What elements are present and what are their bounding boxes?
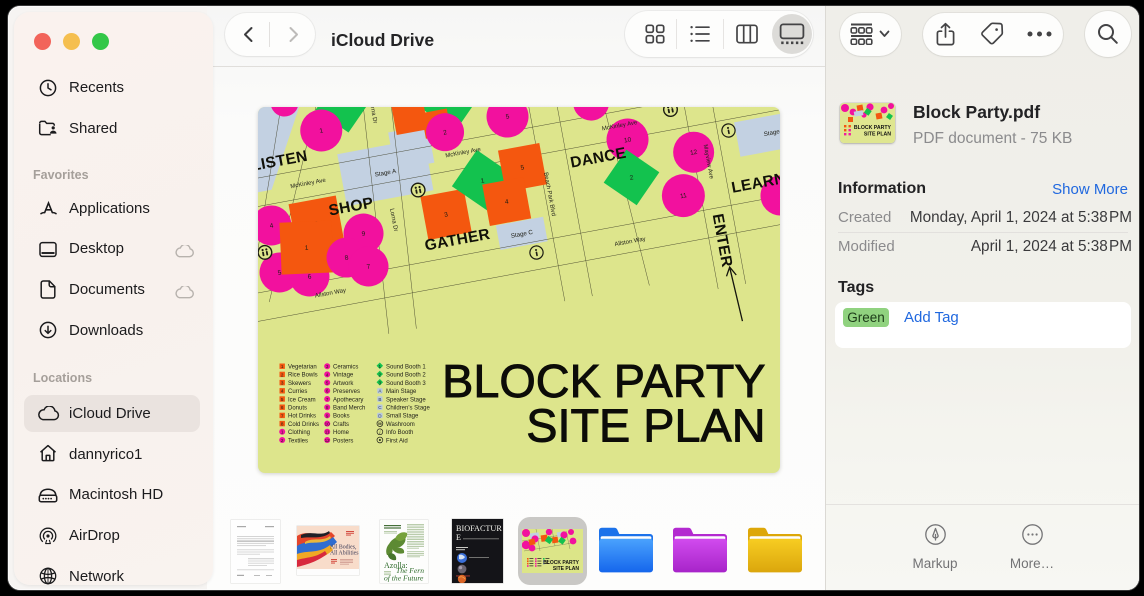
svg-text:Rice Bowls: Rice Bowls: [288, 373, 318, 379]
svg-text:5: 5: [326, 381, 329, 386]
svg-text:Apothecary: Apothecary: [333, 397, 363, 403]
svg-text:6: 6: [281, 405, 284, 410]
svg-text:7: 7: [281, 413, 284, 418]
svg-text:Posters: Posters: [333, 438, 353, 444]
svg-text:Sound Booth 2: Sound Booth 2: [386, 373, 426, 379]
svg-text:of the Future: of the Future: [384, 574, 424, 583]
svg-text:Books: Books: [333, 414, 350, 420]
svg-text:Hot Drinks: Hot Drinks: [288, 414, 316, 420]
svg-text:Sound Booth 3: Sound Booth 3: [386, 381, 426, 387]
svg-text:Curries: Curries: [288, 389, 307, 395]
svg-text:9: 9: [326, 413, 329, 418]
svg-text:6: 6: [326, 389, 329, 394]
svg-text:Vegetarian: Vegetarian: [288, 365, 317, 371]
svg-text:Main Stage: Main Stage: [386, 389, 417, 395]
svg-text:Ice Cream: Ice Cream: [288, 397, 316, 403]
svg-text:Ceramics: Ceramics: [333, 365, 358, 371]
svg-text:Vintage: Vintage: [333, 373, 354, 379]
svg-text:Sound Booth 1: Sound Booth 1: [386, 365, 426, 371]
svg-text:8: 8: [326, 405, 329, 410]
svg-text:2: 2: [281, 372, 284, 377]
svg-text:Artwork: Artwork: [333, 381, 354, 387]
svg-text:Beach Park Blvd: Beach Park Blvd: [542, 172, 556, 217]
svg-text:2: 2: [281, 438, 284, 443]
svg-text:Children's Stage: Children's Stage: [386, 406, 431, 412]
svg-text:Lorna Dr: Lorna Dr: [388, 208, 398, 232]
svg-text:3: 3: [379, 381, 382, 386]
svg-text:SITE PLAN: SITE PLAN: [553, 566, 580, 572]
svg-text:SITE PLAN: SITE PLAN: [864, 132, 891, 138]
svg-text:B: B: [378, 397, 381, 402]
svg-text:Info Booth: Info Booth: [386, 430, 413, 436]
svg-text:All Abilities: All Abilities: [330, 551, 359, 557]
svg-text:7: 7: [326, 397, 329, 402]
svg-text:Skewers: Skewers: [288, 381, 311, 387]
svg-text:3: 3: [281, 381, 284, 386]
svg-text:Small Stage: Small Stage: [386, 414, 419, 420]
svg-text:Cold Drinks: Cold Drinks: [288, 422, 319, 428]
svg-text:11: 11: [325, 430, 330, 435]
svg-text:2: 2: [379, 372, 382, 377]
svg-text:First Aid: First Aid: [386, 438, 408, 444]
svg-text:Lorna Dr: Lorna Dr: [368, 107, 378, 124]
svg-text:Clothing: Clothing: [288, 430, 310, 436]
svg-text:McKinley Ave: McKinley Ave: [290, 178, 327, 191]
svg-text:Speaker Stage: Speaker Stage: [386, 397, 426, 403]
svg-text:8: 8: [281, 422, 284, 427]
svg-text:BLOCK PARTY: BLOCK PARTY: [854, 125, 892, 131]
svg-text:1: 1: [305, 245, 309, 252]
svg-text:Preserves: Preserves: [333, 389, 360, 395]
svg-text:Allston Way: Allston Way: [614, 236, 646, 248]
svg-text:i: i: [379, 431, 381, 436]
svg-text:BIOFACTUR: BIOFACTUR: [456, 524, 502, 533]
svg-text:ENTER: ENTER: [709, 212, 736, 268]
svg-text:1: 1: [379, 364, 382, 369]
svg-text:E: E: [456, 533, 461, 542]
svg-text:1: 1: [281, 430, 284, 435]
svg-text:Washroom: Washroom: [386, 422, 415, 428]
svg-text:Home: Home: [333, 430, 350, 436]
svg-text:1: 1: [281, 364, 284, 369]
svg-text:4: 4: [281, 389, 284, 394]
svg-text:4: 4: [326, 372, 329, 377]
svg-text:10: 10: [325, 422, 331, 427]
svg-text:SITE PLAN: SITE PLAN: [526, 400, 765, 452]
svg-text:Crafts: Crafts: [333, 422, 349, 428]
svg-text:5: 5: [281, 397, 284, 402]
svg-text:Donuts: Donuts: [288, 406, 307, 412]
svg-text:Textiles: Textiles: [288, 438, 308, 444]
svg-text:Band Merch: Band Merch: [333, 406, 365, 412]
svg-text:12: 12: [325, 438, 331, 443]
svg-text:3: 3: [326, 364, 329, 369]
